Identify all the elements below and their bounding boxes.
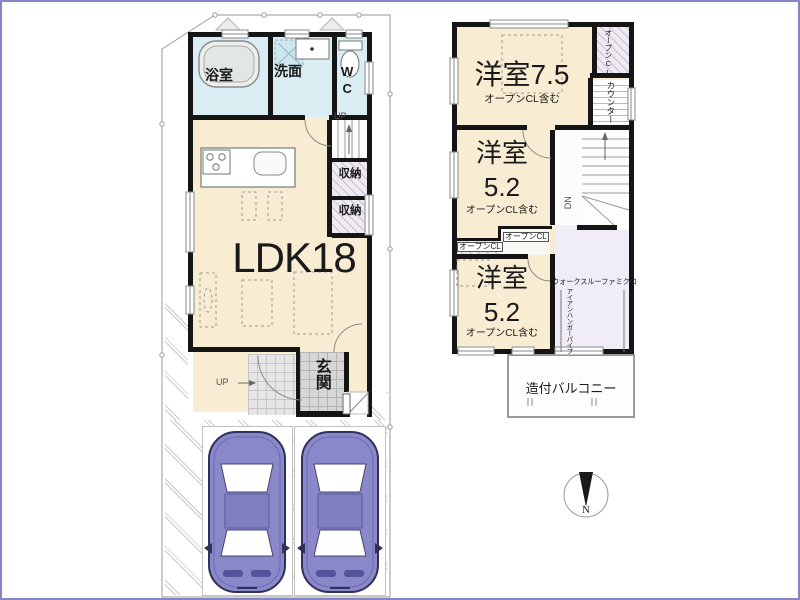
stairs-1f: [338, 120, 359, 158]
storage-upper-label: 収納: [332, 168, 368, 180]
open-closet-top-label: オープンCL: [604, 29, 612, 75]
floor-plan-canvas: 浴室 洗面 WC UP 収納 収納 LDK18 玄関 UP 洋室7.5 オープン…: [0, 0, 800, 600]
kitchen-counter-icon: [201, 148, 295, 187]
hanger-pipe-label: アイアンハンガーパイプ: [564, 288, 571, 354]
car-right: [297, 432, 383, 592]
wc-label: WC: [340, 64, 354, 98]
bedroom-bottom-note: オープンCL含む: [452, 329, 552, 340]
roof-vent-icon: [216, 18, 344, 30]
walkthrough-closet-label: ウォークスルーファミクロ: [552, 278, 639, 286]
ldk-label: LDK18: [214, 236, 374, 280]
entrance-label: 玄関: [312, 358, 329, 390]
stairs-down-label: DN: [564, 196, 573, 209]
balcony-drain-marks: [528, 398, 596, 406]
bedroom-bottom-size: 5.2: [452, 299, 552, 326]
bedroom-top-note: オープンCL含む: [462, 94, 582, 105]
approach-up-label: UP: [216, 378, 229, 387]
car-left: [204, 432, 290, 592]
bedroom-bottom-label: 洋室: [452, 265, 552, 292]
bedroom-top-label: 洋室7.5: [462, 60, 582, 89]
approach-arrow: [238, 380, 256, 386]
open-closet-left-label: オープンCL: [457, 242, 503, 252]
bedroom-mid-size: 5.2: [452, 174, 552, 201]
stairs-2f: [582, 132, 629, 225]
bath-label: 浴室: [205, 68, 261, 83]
washroom-label: 洗面: [274, 64, 314, 79]
storage-lower-label: 収納: [332, 205, 368, 217]
balcony-label: 造付バルコニー: [507, 382, 635, 396]
vanity-icon: [296, 39, 329, 59]
counter-label: カウンター: [606, 81, 615, 126]
compass-north-label: N: [579, 505, 593, 517]
bedroom-mid-label: 洋室: [452, 140, 552, 167]
stairs-up-label: UP: [334, 112, 347, 121]
open-closet-right-label: オープンCL: [503, 232, 549, 242]
bedroom-mid-note: オープンCL含む: [452, 206, 552, 217]
porch-step: [343, 392, 368, 414]
